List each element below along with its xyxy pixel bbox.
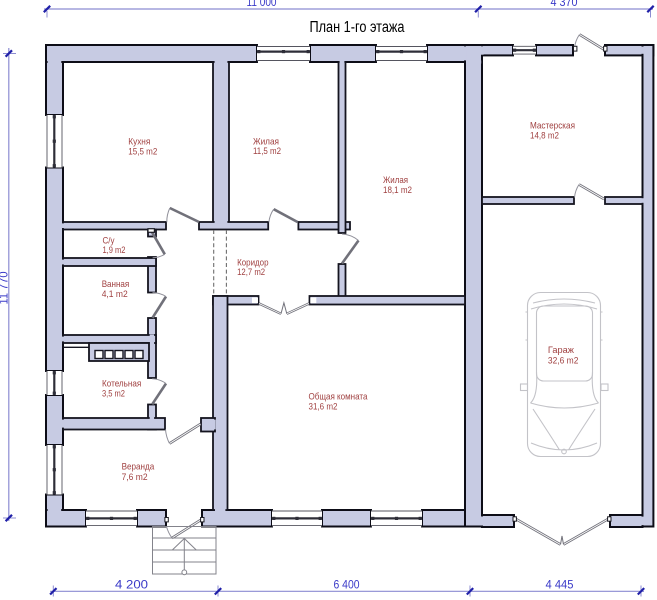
svg-text:4 200: 4 200: [115, 577, 148, 591]
svg-text:План 1-го этажа: План 1-го этажа: [310, 19, 405, 36]
svg-text:Кухня: Кухня: [128, 137, 150, 147]
svg-text:14,8 m2: 14,8 m2: [530, 131, 559, 141]
svg-text:15,5 m2: 15,5 m2: [128, 147, 157, 157]
svg-text:Жилая: Жилая: [383, 175, 408, 185]
svg-text:4 370: 4 370: [551, 0, 578, 9]
svg-text:С/у: С/у: [103, 236, 115, 246]
svg-text:32,6 m2: 32,6 m2: [548, 355, 579, 365]
svg-text:6 400: 6 400: [334, 577, 360, 591]
svg-text:11 770: 11 770: [0, 271, 11, 304]
svg-text:31,6 m2: 31,6 m2: [309, 402, 338, 412]
svg-text:7,6 m2: 7,6 m2: [122, 472, 148, 482]
svg-text:12,7 m2: 12,7 m2: [237, 267, 265, 277]
svg-text:4 445: 4 445: [546, 577, 574, 591]
svg-text:Веранда: Веранда: [122, 462, 155, 472]
svg-text:Коридор: Коридор: [237, 258, 268, 268]
svg-text:11,5 m2: 11,5 m2: [253, 146, 281, 156]
svg-text:Котельная: Котельная: [102, 379, 141, 389]
svg-text:1,9 m2: 1,9 m2: [103, 245, 126, 255]
svg-text:Ванная: Ванная: [102, 279, 130, 289]
svg-text:11 000: 11 000: [247, 0, 277, 9]
svg-text:3,5 m2: 3,5 m2: [102, 389, 125, 399]
svg-text:Мастерская: Мастерская: [530, 120, 575, 130]
svg-text:Гараж: Гараж: [548, 345, 575, 355]
svg-text:18,1 m2: 18,1 m2: [383, 185, 412, 195]
svg-text:Общая комната: Общая комната: [309, 392, 369, 402]
svg-text:Жилая: Жилая: [253, 137, 279, 147]
svg-text:4,1 m2: 4,1 m2: [102, 289, 128, 299]
